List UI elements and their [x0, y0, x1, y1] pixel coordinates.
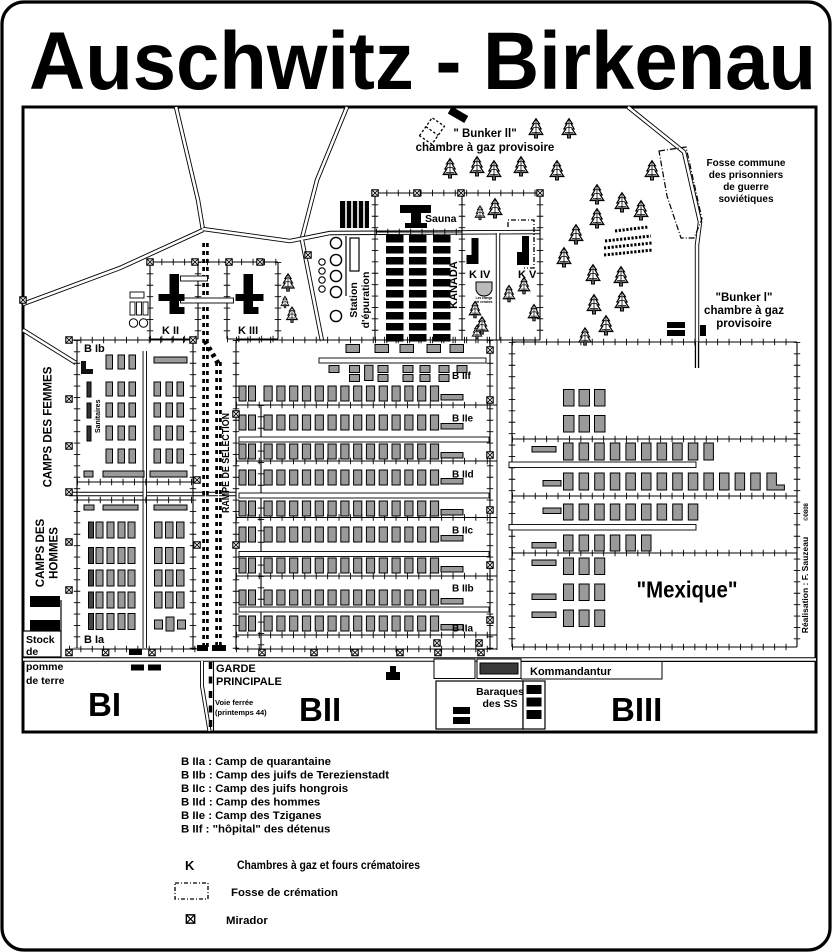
svg-text:chambre à gaz: chambre à gaz [704, 305, 784, 317]
svg-text:B IIe: B IIe [452, 414, 474, 425]
svg-text:B IIf : "hôpital" des détenus: B IIf : "hôpital" des détenus [181, 823, 330, 835]
svg-text:d'épuration: d'épuration [360, 272, 372, 329]
svg-text:B IIc : Camp des juifs hongroi: B IIc : Camp des juifs hongrois [181, 783, 348, 795]
svg-text:Kommandantur: Kommandantur [530, 666, 612, 678]
svg-text:provisoire: provisoire [716, 318, 772, 330]
svg-text:GARDE: GARDE [216, 663, 256, 675]
svg-text:chambre à gaz provisoire: chambre à gaz provisoire [416, 142, 555, 154]
svg-text:K: K [185, 858, 195, 873]
svg-text:de terre: de terre [26, 675, 65, 687]
svg-text:Sanitaires: Sanitaires [95, 399, 102, 433]
svg-text:B IIc: B IIc [452, 526, 474, 537]
svg-text:RAMPE DE SELECTION: RAMPE DE SELECTION [221, 413, 232, 513]
svg-text:B IIb: B IIb [452, 584, 474, 595]
svg-text:des SS: des SS [482, 698, 517, 710]
svg-text:" Bunker ll": " Bunker ll" [453, 128, 516, 140]
svg-text:B IId: B IId [452, 470, 474, 481]
svg-text:B IIa: B IIa [452, 624, 474, 635]
svg-text:BII: BII [299, 691, 341, 728]
svg-text:Sauna: Sauna [425, 213, 457, 225]
svg-text:Mirador: Mirador [226, 915, 268, 927]
svg-text:soviétiques: soviétiques [718, 194, 773, 205]
svg-text:pomme: pomme [26, 661, 64, 673]
svg-text:K II: K II [162, 325, 179, 337]
svg-text:B IId : Camp des hommes: B IId : Camp des hommes [181, 796, 320, 808]
svg-text:de cendres: de cendres [476, 300, 493, 304]
svg-text:de guerre: de guerre [723, 182, 769, 193]
svg-text:B IIe : Camp des Tziganes: B IIe : Camp des Tziganes [181, 810, 322, 822]
svg-text:K IV: K IV [469, 269, 491, 281]
svg-text:B IIb : Camp des juifs de Tere: B IIb : Camp des juifs de Terezienstadt [181, 769, 389, 781]
svg-text:B Ia: B Ia [84, 634, 105, 646]
svg-text:Baraques: Baraques [476, 686, 524, 698]
svg-text:CAMPS DES: CAMPS DES [35, 518, 47, 587]
svg-text:©0808: ©0808 [803, 502, 810, 520]
svg-text:"Mexique": "Mexique" [637, 577, 738, 603]
svg-text:Fosse commune: Fosse commune [707, 158, 786, 169]
svg-text:KANADA: KANADA [448, 261, 460, 309]
svg-text:Voie ferrée: Voie ferrée [215, 698, 253, 707]
svg-text:des prisonniers: des prisonniers [709, 170, 784, 181]
svg-text:B Ib: B Ib [84, 343, 105, 355]
svg-text:K V: K V [518, 269, 537, 281]
svg-text:Stock: Stock [26, 634, 55, 646]
svg-text:BI: BI [88, 686, 121, 723]
svg-text:PRINCIPALE: PRINCIPALE [216, 676, 282, 688]
svg-text:Station: Station [348, 282, 360, 318]
svg-text:de: de [26, 646, 38, 658]
svg-text:B IIa : Camp de quarantaine: B IIa : Camp de quarantaine [181, 756, 331, 768]
svg-text:Réalisation : F. Sauzeau: Réalisation : F. Sauzeau [800, 537, 810, 633]
svg-text:HOMMES: HOMMES [49, 527, 61, 579]
svg-text:Auschwitz - Birkenau: Auschwitz - Birkenau [29, 16, 816, 107]
svg-text:Chambres à gaz et fours crémat: Chambres à gaz et fours crématoires [237, 860, 420, 872]
svg-text:K III: K III [238, 325, 258, 337]
svg-text:B IIf: B IIf [452, 371, 472, 382]
svg-text:(printemps 44): (printemps 44) [215, 708, 267, 717]
svg-text:"Bunker l": "Bunker l" [716, 292, 773, 304]
svg-text:CAMPS DES FEMMES: CAMPS DES FEMMES [43, 366, 55, 487]
svg-text:Fosse de crémation: Fosse de crémation [231, 887, 338, 899]
svg-text:BIII: BIII [611, 691, 662, 728]
